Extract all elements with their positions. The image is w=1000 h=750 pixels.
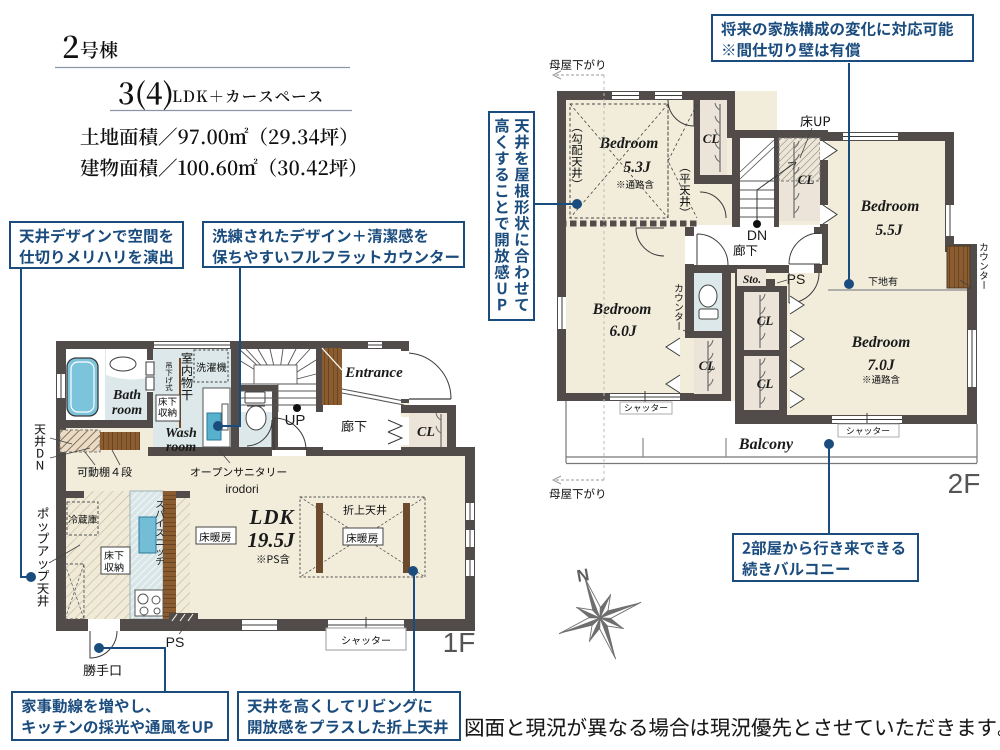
svg-text:Entrance: Entrance — [344, 365, 403, 381]
svg-text:CL: CL — [757, 376, 774, 391]
svg-text:5.3J: 5.3J — [623, 159, 651, 176]
svg-text:DN: DN — [747, 227, 767, 243]
svg-text:1F: 1F — [443, 627, 476, 658]
svg-text:room: room — [112, 403, 142, 418]
svg-text:room: room — [166, 440, 196, 455]
svg-text:CL: CL — [798, 172, 815, 187]
svg-text:Bedroom: Bedroom — [599, 135, 659, 152]
svg-text:CL: CL — [699, 358, 716, 373]
svg-text:Bath: Bath — [112, 388, 141, 403]
svg-text:Wash: Wash — [165, 426, 197, 441]
svg-text:CL: CL — [703, 131, 720, 146]
svg-text:Bedroom: Bedroom — [851, 334, 911, 351]
svg-text:Bedroom: Bedroom — [592, 301, 652, 318]
svg-text:6.0J: 6.0J — [609, 323, 637, 340]
svg-text:7.0J: 7.0J — [867, 357, 895, 374]
svg-text:LDK: LDK — [249, 505, 296, 529]
svg-text:Balcony: Balcony — [738, 436, 794, 453]
svg-text:2F: 2F — [948, 468, 981, 499]
svg-text:Sto.: Sto. — [743, 274, 761, 286]
svg-text:5.5J: 5.5J — [875, 222, 903, 239]
svg-text:CL: CL — [757, 313, 774, 328]
svg-text:Bedroom: Bedroom — [860, 198, 920, 215]
svg-text:19.5J: 19.5J — [247, 528, 296, 552]
svg-text:PS: PS — [166, 634, 185, 650]
svg-text:UP: UP — [285, 412, 306, 429]
svg-text:CL: CL — [417, 425, 435, 440]
svg-text:irodori: irodori — [225, 482, 258, 496]
